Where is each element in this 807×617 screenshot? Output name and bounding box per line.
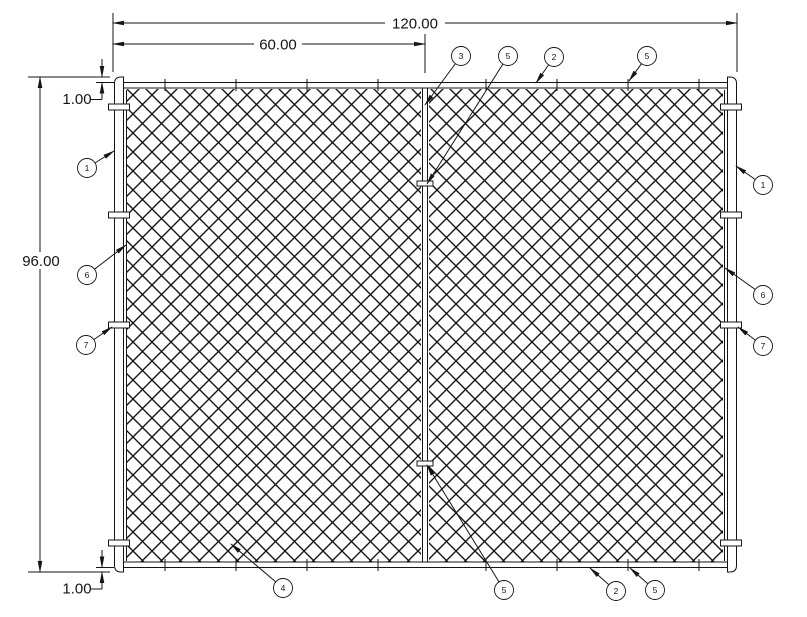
callout-balloon-3-top: 3	[452, 47, 471, 66]
callout-balloon-1-left: 1	[78, 159, 97, 178]
callout-balloon-5-top-right: 5	[638, 47, 657, 66]
dim-label-bottom-offset: 1.00	[62, 581, 91, 598]
callout-balloon-6-right: 6	[754, 286, 773, 305]
callout-balloon-5-bottom-right: 5	[646, 581, 665, 600]
svg-text:5: 5	[502, 585, 507, 595]
callout-balloon-2-bottom: 2	[607, 582, 626, 601]
dimension-mid-span: 60.00	[113, 34, 425, 73]
svg-text:5: 5	[645, 51, 650, 61]
callout-balloon-2-top: 2	[545, 48, 564, 67]
svg-text:2: 2	[552, 52, 557, 62]
dim-label-height: 96.00	[22, 253, 60, 270]
svg-text:1: 1	[85, 163, 90, 173]
svg-text:7: 7	[761, 341, 766, 351]
svg-text:6: 6	[85, 270, 90, 280]
dim-label-overall-width: 120.00	[392, 16, 438, 33]
fence-elevation-drawing: 120.00 60.00 96.00 1.00 1.0	[0, 0, 807, 617]
callout-balloon-6-left: 6	[78, 266, 97, 285]
svg-text:1: 1	[761, 180, 766, 190]
top-rail	[124, 83, 728, 89]
callout-balloon-5-top-left: 5	[499, 47, 518, 66]
bottom-rail	[124, 562, 728, 568]
svg-text:6: 6	[761, 290, 766, 300]
callout-balloon-5-bottom-left: 5	[495, 581, 514, 600]
svg-text:7: 7	[84, 340, 89, 350]
tie-wire-middle-lower	[417, 461, 433, 466]
dim-label-mid-span: 60.00	[259, 37, 297, 54]
callout-balloon-7-right: 7	[754, 337, 773, 356]
svg-text:5: 5	[653, 585, 658, 595]
svg-text:3: 3	[459, 51, 464, 61]
tie-wire-middle-upper	[417, 181, 433, 186]
dim-label-top-offset: 1.00	[62, 91, 91, 108]
svg-text:4: 4	[281, 583, 286, 593]
fence-drawing-canvas: 120.00 60.00 96.00 1.00 1.0	[0, 0, 807, 617]
svg-text:2: 2	[614, 586, 619, 596]
dimension-bottom-offset: 1.00	[62, 550, 114, 598]
callout-balloon-4-bottom: 4	[274, 579, 293, 598]
callout-balloon-7-left: 7	[77, 336, 96, 355]
dimension-top-offset: 1.00	[62, 59, 114, 108]
callout-balloon-1-right: 1	[754, 176, 773, 195]
dimension-height: 96.00	[17, 77, 110, 572]
svg-text:5: 5	[506, 51, 511, 61]
